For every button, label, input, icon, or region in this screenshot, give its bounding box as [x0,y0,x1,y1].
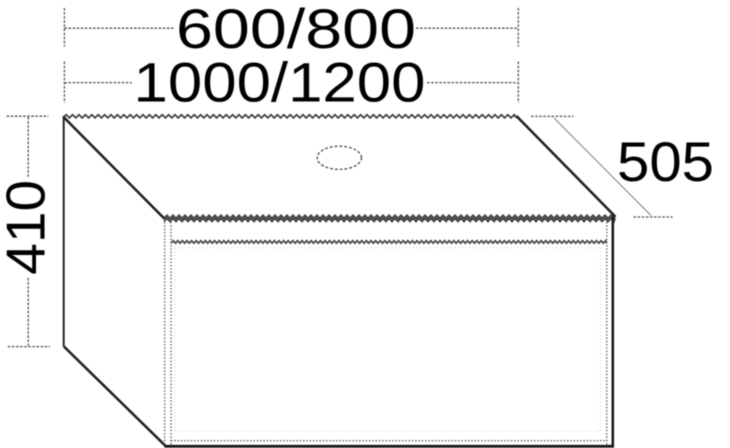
svg-text:1000/1200: 1000/1200 [134,51,426,114]
svg-text:505: 505 [617,130,714,193]
svg-text:410: 410 [0,180,57,275]
